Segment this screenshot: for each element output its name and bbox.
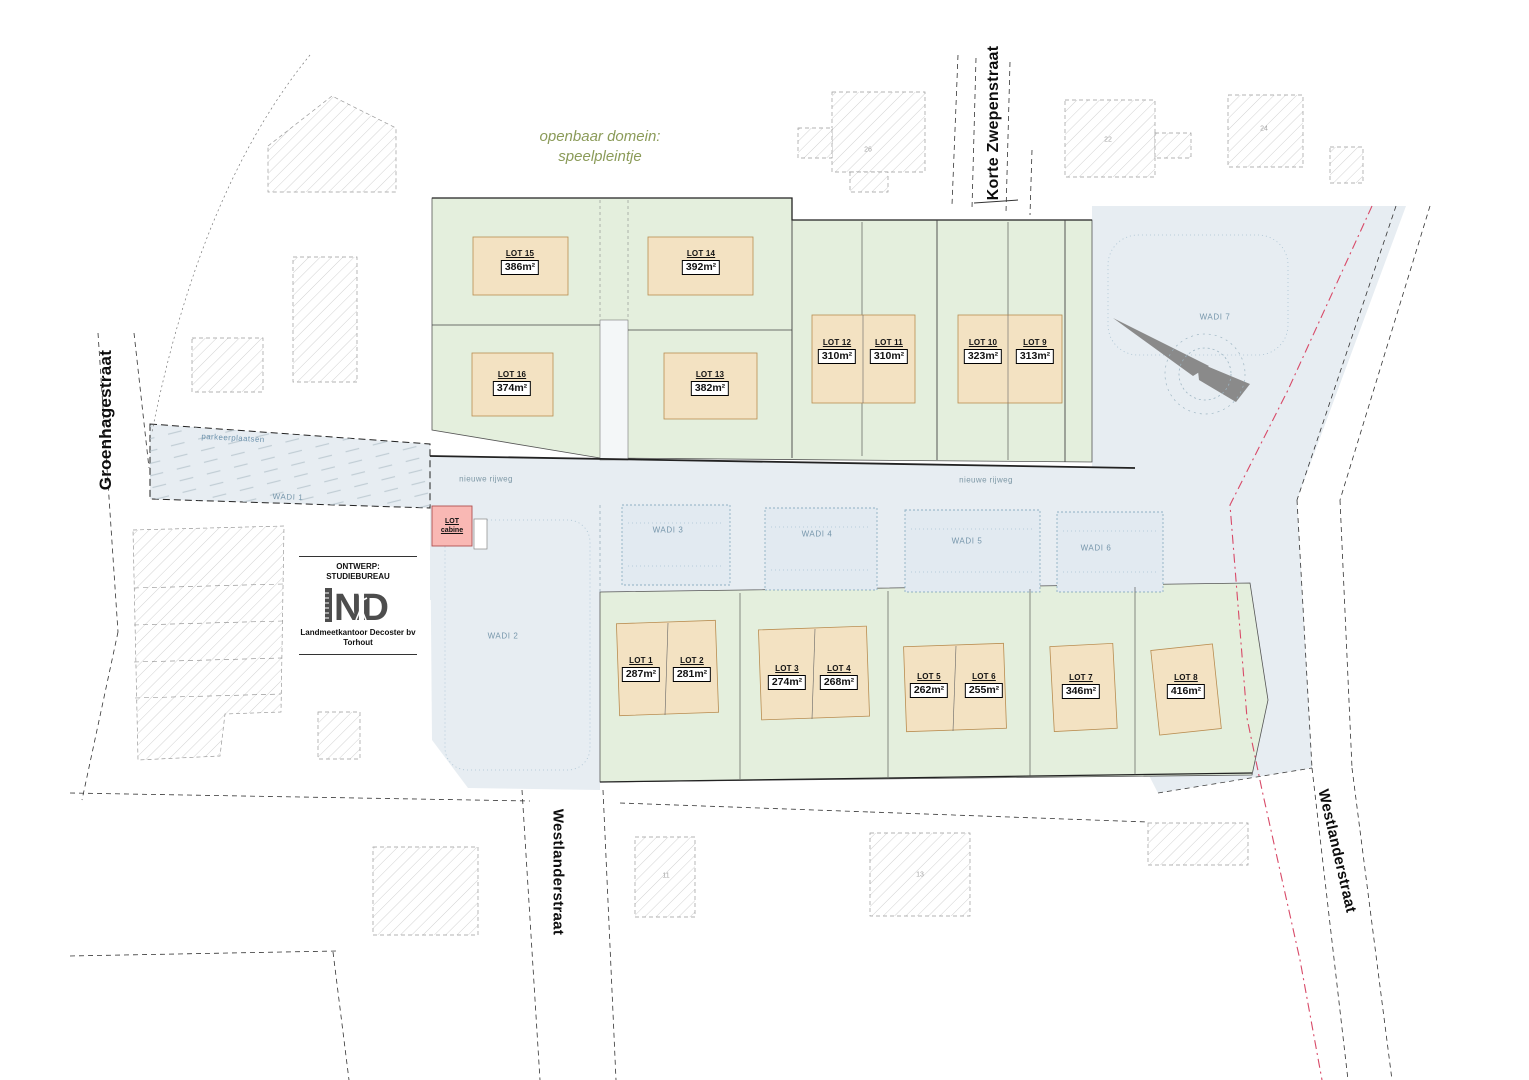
- existing-building: [373, 847, 478, 935]
- lot-area: 313m²: [1016, 349, 1054, 364]
- street-edge: [522, 790, 540, 1080]
- lot-label-11: LOT 11 310m²: [870, 338, 908, 364]
- lot-number: LOT 11: [875, 338, 903, 347]
- wadi3-box: [622, 505, 730, 585]
- house-number: 22: [1104, 137, 1112, 144]
- lot-label-15: LOT 15 386m²: [501, 249, 539, 275]
- wadi6-label: WADI 6: [1081, 544, 1112, 553]
- wadi7-label: WADI 7: [1200, 313, 1231, 322]
- lot-label-2: LOT 2 281m²: [673, 656, 711, 682]
- existing-building: [318, 712, 360, 759]
- existing-building: [832, 92, 925, 172]
- lot-number: LOT 4: [827, 664, 851, 673]
- lot-number: LOT 7: [1069, 673, 1093, 682]
- site-plan-canvas: openbaar domein: speelpleintje Groenhage…: [0, 0, 1529, 1080]
- street-edge: [1006, 62, 1010, 212]
- existing-building: [192, 338, 263, 392]
- existing-building: [1148, 823, 1248, 865]
- lot-number: LOT 13: [696, 370, 724, 379]
- street-label-korte-zwepenstraat: Korte Zwepenstraat: [985, 46, 1003, 201]
- existing-building: [1155, 133, 1191, 158]
- surveyor-logo-block: ONTWERP: STUDIEBUREAU ND Landmeetkantoor…: [299, 556, 417, 655]
- lot-area: 255m²: [965, 683, 1003, 698]
- cabine-label-line1: LOT: [441, 517, 463, 526]
- wadi4-label: WADI 4: [802, 530, 833, 539]
- lot-label-10: LOT 10 323m²: [964, 338, 1002, 364]
- street-edge: [70, 793, 530, 801]
- logo-line1: ONTWERP:: [299, 562, 417, 572]
- existing-building: [798, 128, 832, 158]
- lot-area: 323m²: [964, 349, 1002, 364]
- wadi4-box: [765, 508, 877, 590]
- house-number: 11: [662, 873, 669, 880]
- lot-number: LOT 9: [1023, 338, 1047, 347]
- site-plan-linework: [0, 0, 1529, 1080]
- lot-label-16: LOT 16 374m²: [493, 370, 531, 396]
- new-road-label-right: nieuwe rijweg: [959, 476, 1013, 485]
- street-edge: [1340, 500, 1352, 768]
- wadi5-label: WADI 5: [952, 537, 983, 546]
- street-edge: [82, 632, 118, 800]
- lot-label-5: LOT 5 262m²: [910, 672, 948, 698]
- cabine-label: LOT cabine: [441, 517, 463, 535]
- house-number: 24: [1260, 126, 1268, 133]
- lot-area: 287m²: [622, 667, 660, 682]
- cabine-annex: [474, 519, 487, 549]
- cabine-label-line2: cabine: [441, 526, 463, 535]
- street-edge: [70, 951, 336, 956]
- wadi3-label: WADI 3: [653, 526, 684, 535]
- lot-label-3: LOT 3 274m²: [768, 664, 806, 690]
- wadi1-label: WADI 1: [272, 492, 303, 502]
- lot-label-6: LOT 6 255m²: [965, 672, 1003, 698]
- lot-area: 310m²: [818, 349, 856, 364]
- house-number: 26: [864, 147, 872, 154]
- plan-title-line2: speelpleintje: [540, 147, 661, 167]
- lot-area: 346m²: [1062, 684, 1100, 699]
- new-road-label-left: nieuwe rijweg: [459, 475, 513, 484]
- existing-building: [850, 172, 888, 192]
- lot-label-13: LOT 13 382m²: [691, 370, 729, 396]
- street-label-westlanderstraat-bottom: Westlanderstraat: [550, 809, 567, 935]
- existing-building: [268, 96, 396, 192]
- existing-building: [293, 257, 357, 382]
- nd-monogram-icon: ND: [323, 584, 393, 626]
- lot-number: LOT 15: [506, 249, 534, 258]
- lot-label-7: LOT 7 346m²: [1062, 673, 1100, 699]
- vertical-road: [600, 320, 628, 460]
- wadi5-box: [905, 510, 1040, 592]
- logo-firm: Landmeetkantoor Decoster bv: [299, 628, 417, 638]
- lot-number: LOT 1: [629, 656, 653, 665]
- lot-area: 386m²: [501, 260, 539, 275]
- street-edge: [134, 333, 149, 468]
- lot-number: LOT 6: [972, 672, 996, 681]
- lot-number: LOT 16: [498, 370, 526, 379]
- lot-number: LOT 14: [687, 249, 715, 258]
- street-name-underline: [974, 200, 1018, 203]
- lot-area: 416m²: [1167, 684, 1205, 699]
- logo-city: Torhout: [299, 638, 417, 648]
- plan-title: openbaar domein: speelpleintje: [540, 127, 661, 167]
- logo-line2: STUDIEBUREAU: [299, 572, 417, 582]
- street-edge: [603, 790, 616, 1080]
- street-edge: [620, 803, 870, 812]
- lot-area: 262m²: [910, 683, 948, 698]
- lot-number: LOT 2: [680, 656, 704, 665]
- street-edge: [1352, 768, 1392, 1080]
- lot-number: LOT 10: [969, 338, 997, 347]
- street-edge: [1030, 150, 1032, 215]
- plan-title-line1: openbaar domein:: [540, 127, 661, 147]
- lot-area: 382m²: [691, 381, 729, 396]
- lot-label-14: LOT 14 392m²: [682, 249, 720, 275]
- existing-building: [1330, 147, 1363, 183]
- street-edge: [333, 952, 349, 1080]
- street-label-groenhagestraat: Groenhagestraat: [96, 350, 116, 491]
- lot-label-1: LOT 1 287m²: [622, 656, 660, 682]
- lot-area: 281m²: [673, 667, 711, 682]
- street-edge: [870, 812, 1148, 822]
- wadi2-area: [430, 505, 600, 790]
- street-edge: [972, 58, 976, 208]
- lot-label-8: LOT 8 416m²: [1167, 673, 1205, 699]
- lot-number: LOT 5: [917, 672, 941, 681]
- lot-number: LOT 8: [1174, 673, 1198, 682]
- street-edge: [952, 55, 958, 205]
- lot-area: 392m²: [682, 260, 720, 275]
- lot-area: 268m²: [820, 675, 858, 690]
- existing-building: [133, 526, 284, 760]
- lot-area: 374m²: [493, 381, 531, 396]
- lot-area: 274m²: [768, 675, 806, 690]
- lot-label-4: LOT 4 268m²: [820, 664, 858, 690]
- house-number: 13: [916, 872, 924, 879]
- lot-number: LOT 12: [823, 338, 851, 347]
- wadi2-label: WADI 2: [488, 632, 519, 641]
- lot-number: LOT 3: [775, 664, 799, 673]
- lot-label-9: LOT 9 313m²: [1016, 338, 1054, 364]
- lot-area: 310m²: [870, 349, 908, 364]
- lot-label-12: LOT 12 310m²: [818, 338, 856, 364]
